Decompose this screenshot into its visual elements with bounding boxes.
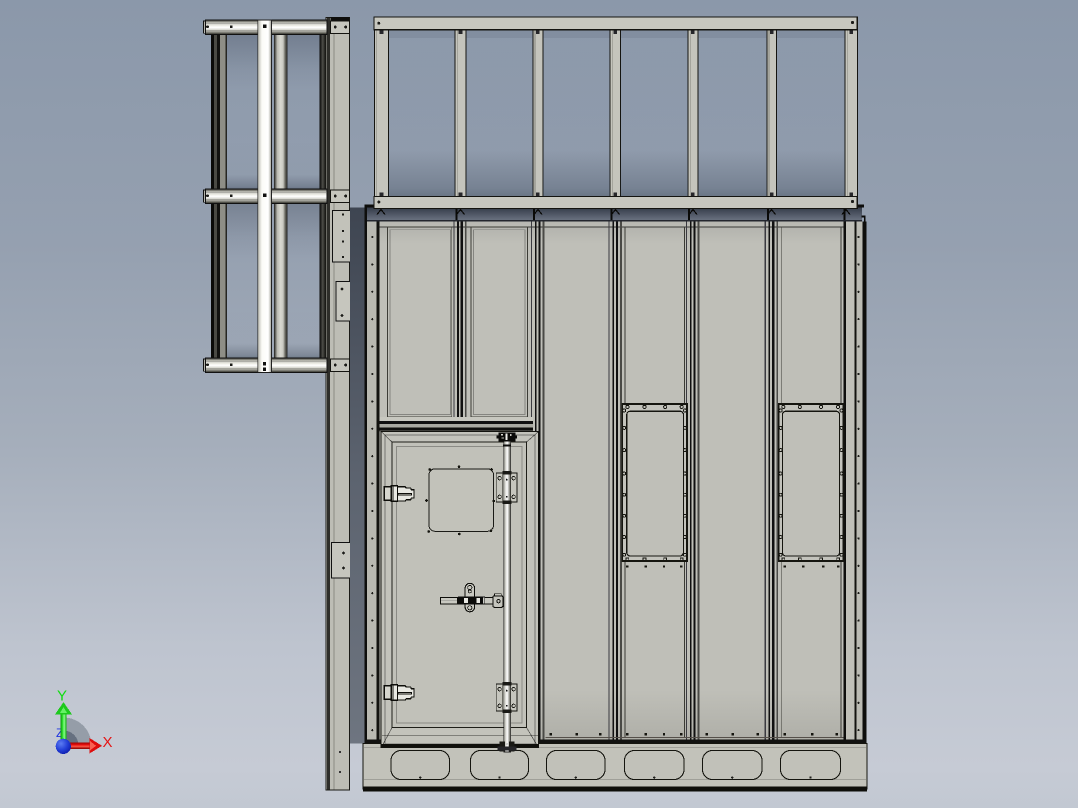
svg-text:Y: Y: [57, 688, 67, 705]
svg-text:X: X: [103, 734, 113, 751]
